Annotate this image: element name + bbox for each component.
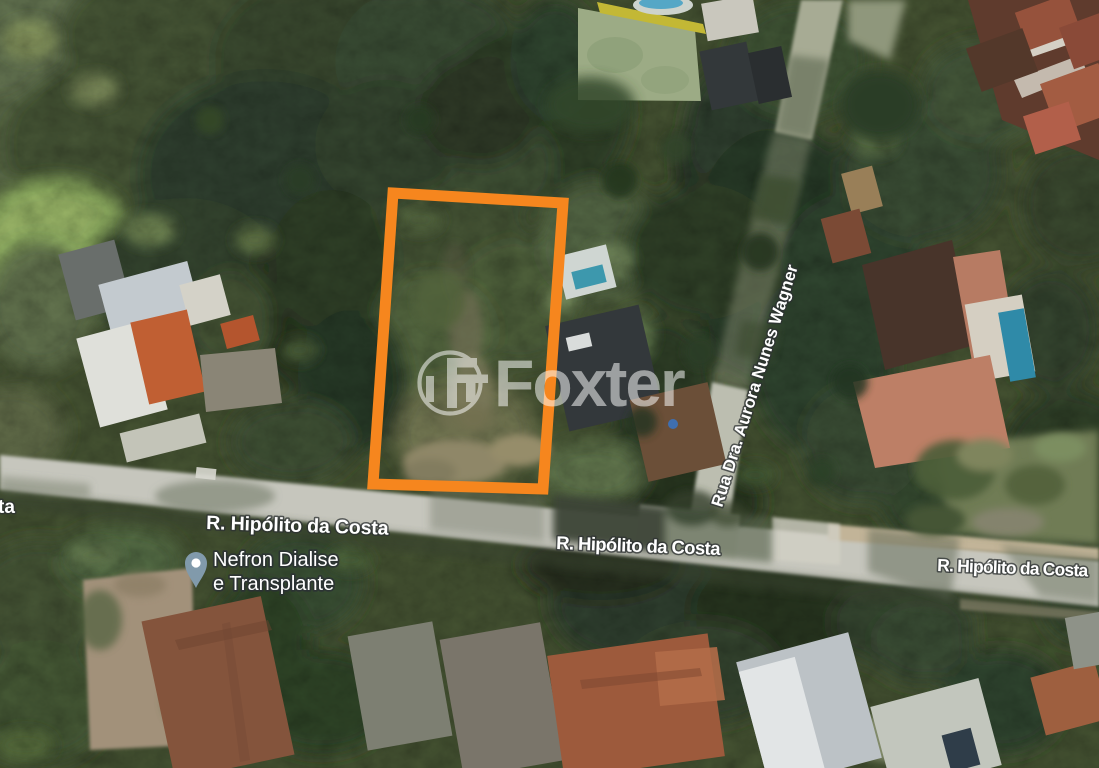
svg-text:Foxter: Foxter — [494, 346, 685, 420]
svg-text:e Transplante: e Transplante — [213, 573, 334, 595]
svg-text:ta: ta — [0, 497, 15, 518]
svg-text:Nefron Dialise: Nefron Dialise — [213, 549, 339, 571]
